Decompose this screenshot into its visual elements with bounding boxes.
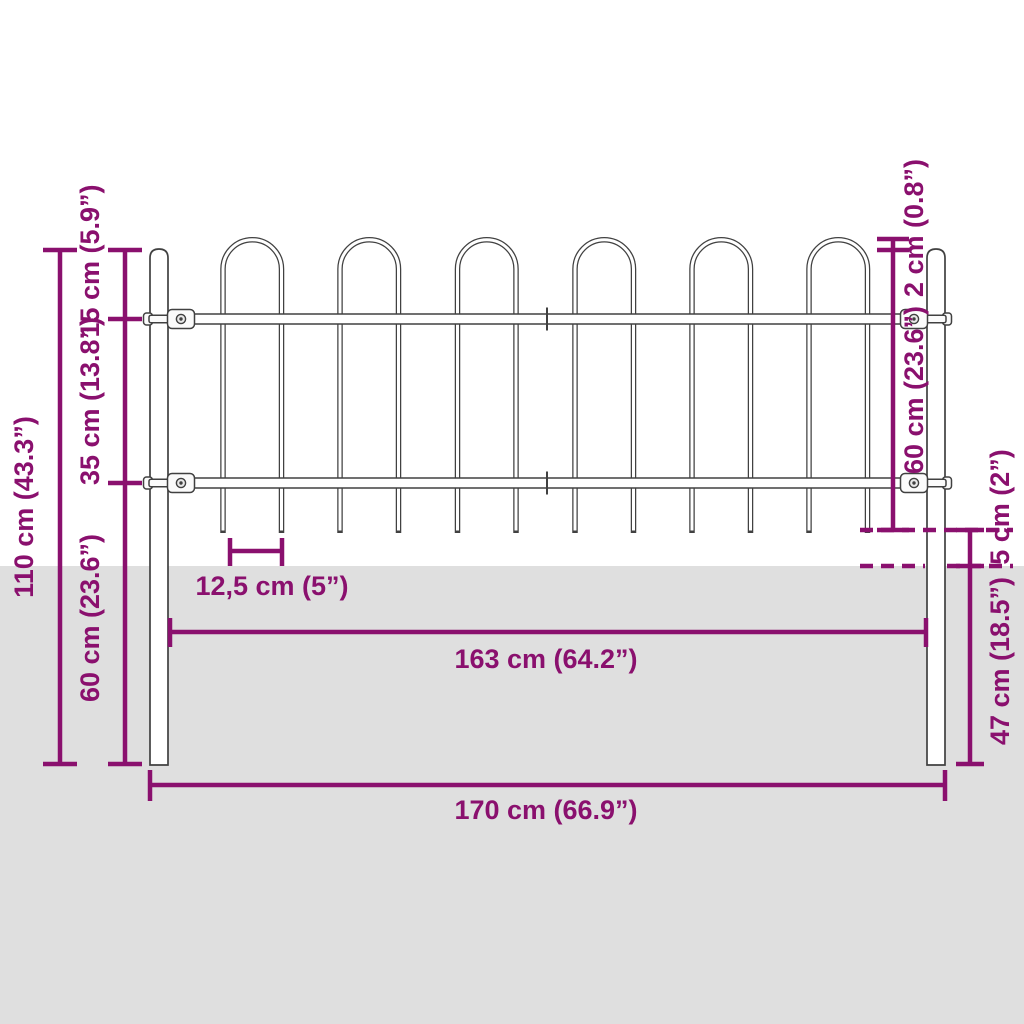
- label-gap-to-ground: 5 cm (2”): [985, 449, 1015, 565]
- right-post: [927, 249, 945, 765]
- label-between-rails: 35 cm (13.8”): [75, 317, 105, 485]
- label-inner-width: 163 cm (64.2”): [454, 644, 637, 674]
- hoop-6: [809, 240, 868, 533]
- label-height-total: 110 cm (43.3”): [9, 416, 39, 598]
- left-post: [150, 249, 168, 765]
- label-bar-spacing: 12,5 cm (5”): [195, 571, 348, 601]
- label-hoop-overhang: 2 cm (0.8”): [899, 159, 929, 297]
- label-bottom-rail-to-base: 60 cm (23.6”): [75, 534, 105, 702]
- hoop-4: [575, 240, 634, 533]
- fence-dimension-diagram: 110 cm (43.3”) 15 cm (5.9”) 35 cm (13.8”…: [0, 0, 1024, 1024]
- label-post-depth: 47 cm (18.5”): [985, 577, 1015, 745]
- label-total-width: 170 cm (66.9”): [454, 795, 637, 825]
- hoop-2: [340, 240, 399, 533]
- label-panel-height: 60 cm (23.6”): [899, 306, 929, 474]
- hoop-5: [692, 240, 751, 533]
- hoop-1: [223, 240, 282, 533]
- hoop-3: [458, 240, 517, 533]
- hoop-bars: [223, 240, 868, 533]
- label-hoop-to-top-rail: 15 cm (5.9”): [75, 184, 105, 337]
